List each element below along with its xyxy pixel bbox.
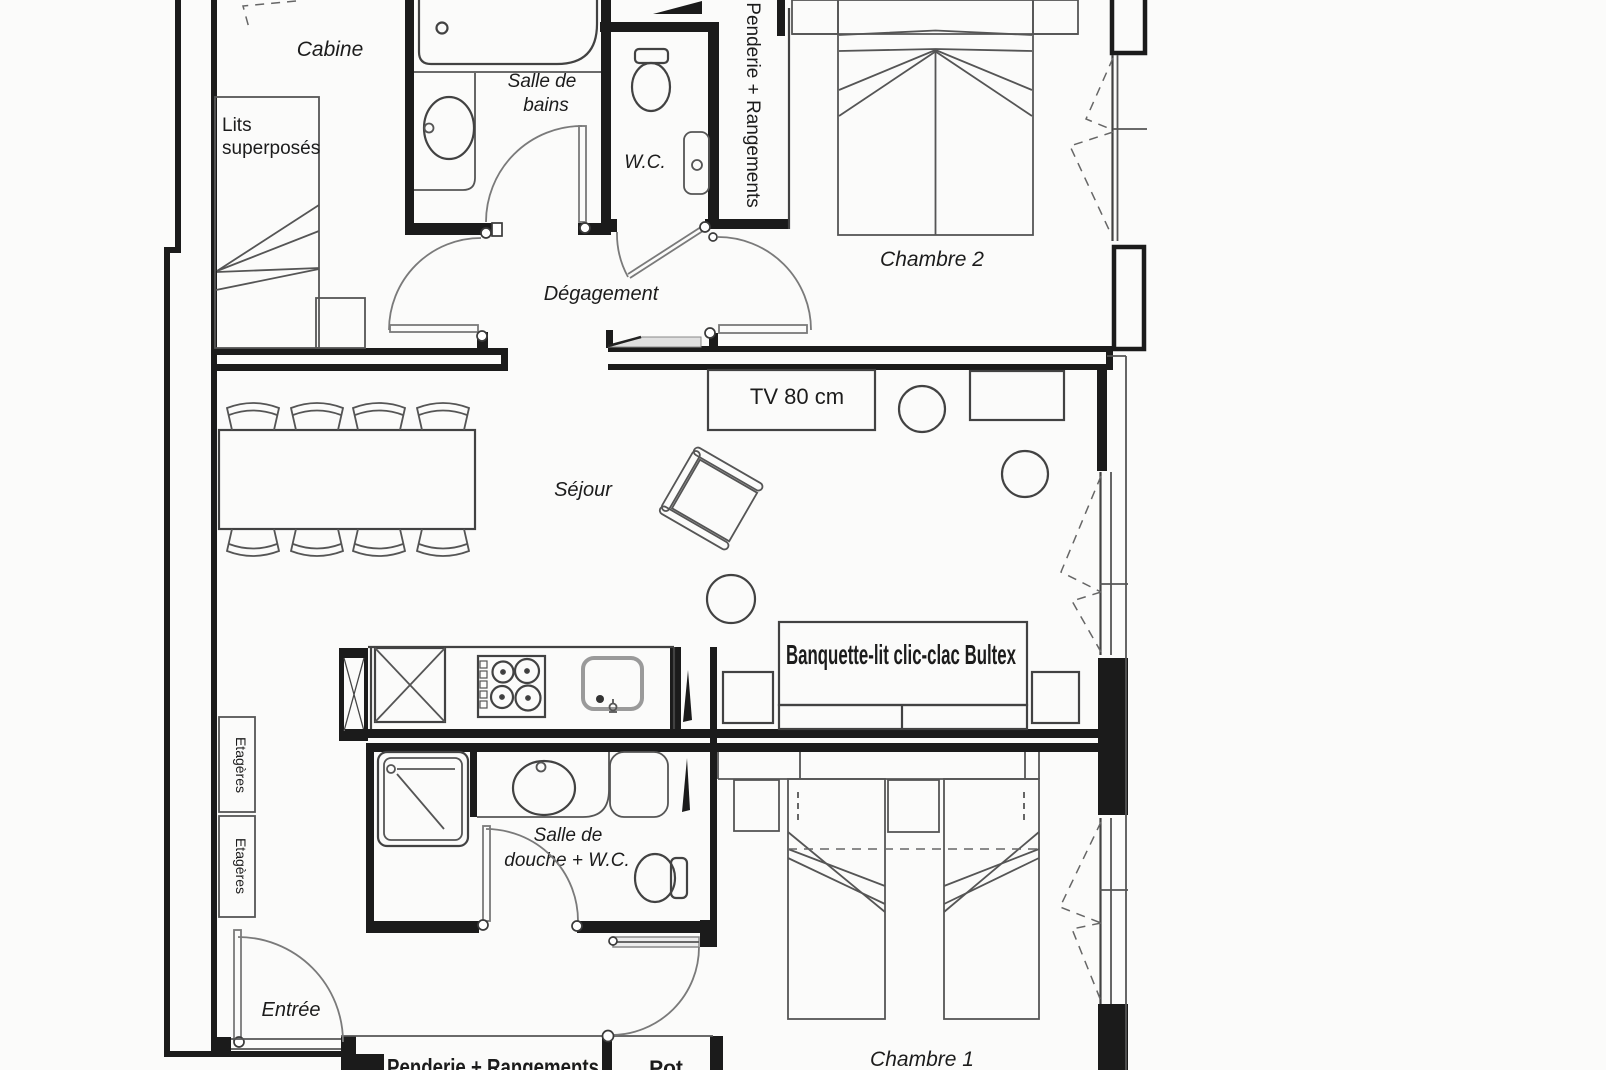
- svg-text:Cabine: Cabine: [297, 38, 364, 61]
- svg-text:Salle de: Salle de: [508, 71, 577, 92]
- svg-text:Penderie + Rangements: Penderie + Rangements: [742, 2, 763, 207]
- svg-text:Chambre 1: Chambre 1: [870, 1048, 974, 1070]
- svg-text:Banquette-lit clic-clac Bultex: Banquette-lit clic-clac Bultex: [786, 639, 1016, 670]
- svg-text:Dégagement: Dégagement: [544, 283, 660, 305]
- svg-text:Lits: Lits: [222, 115, 252, 136]
- svg-text:W.C.: W.C.: [624, 152, 666, 173]
- svg-text:Etagères: Etagères: [233, 838, 249, 894]
- svg-text:douche + W.C.: douche + W.C.: [504, 850, 630, 871]
- svg-text:Salle de: Salle de: [534, 825, 603, 846]
- svg-text:TV 80 cm: TV 80 cm: [750, 384, 844, 409]
- svg-text:Etagères: Etagères: [233, 737, 249, 793]
- svg-text:Penderie + Rangements: Penderie + Rangements: [387, 1054, 599, 1070]
- svg-text:Entrée: Entrée: [262, 999, 321, 1021]
- svg-text:superposés: superposés: [222, 138, 320, 159]
- svg-text:Séjour: Séjour: [554, 479, 613, 501]
- svg-text:bains: bains: [523, 95, 569, 116]
- svg-text:Pot: Pot: [649, 1057, 683, 1070]
- svg-text:Chambre 2: Chambre 2: [880, 248, 984, 271]
